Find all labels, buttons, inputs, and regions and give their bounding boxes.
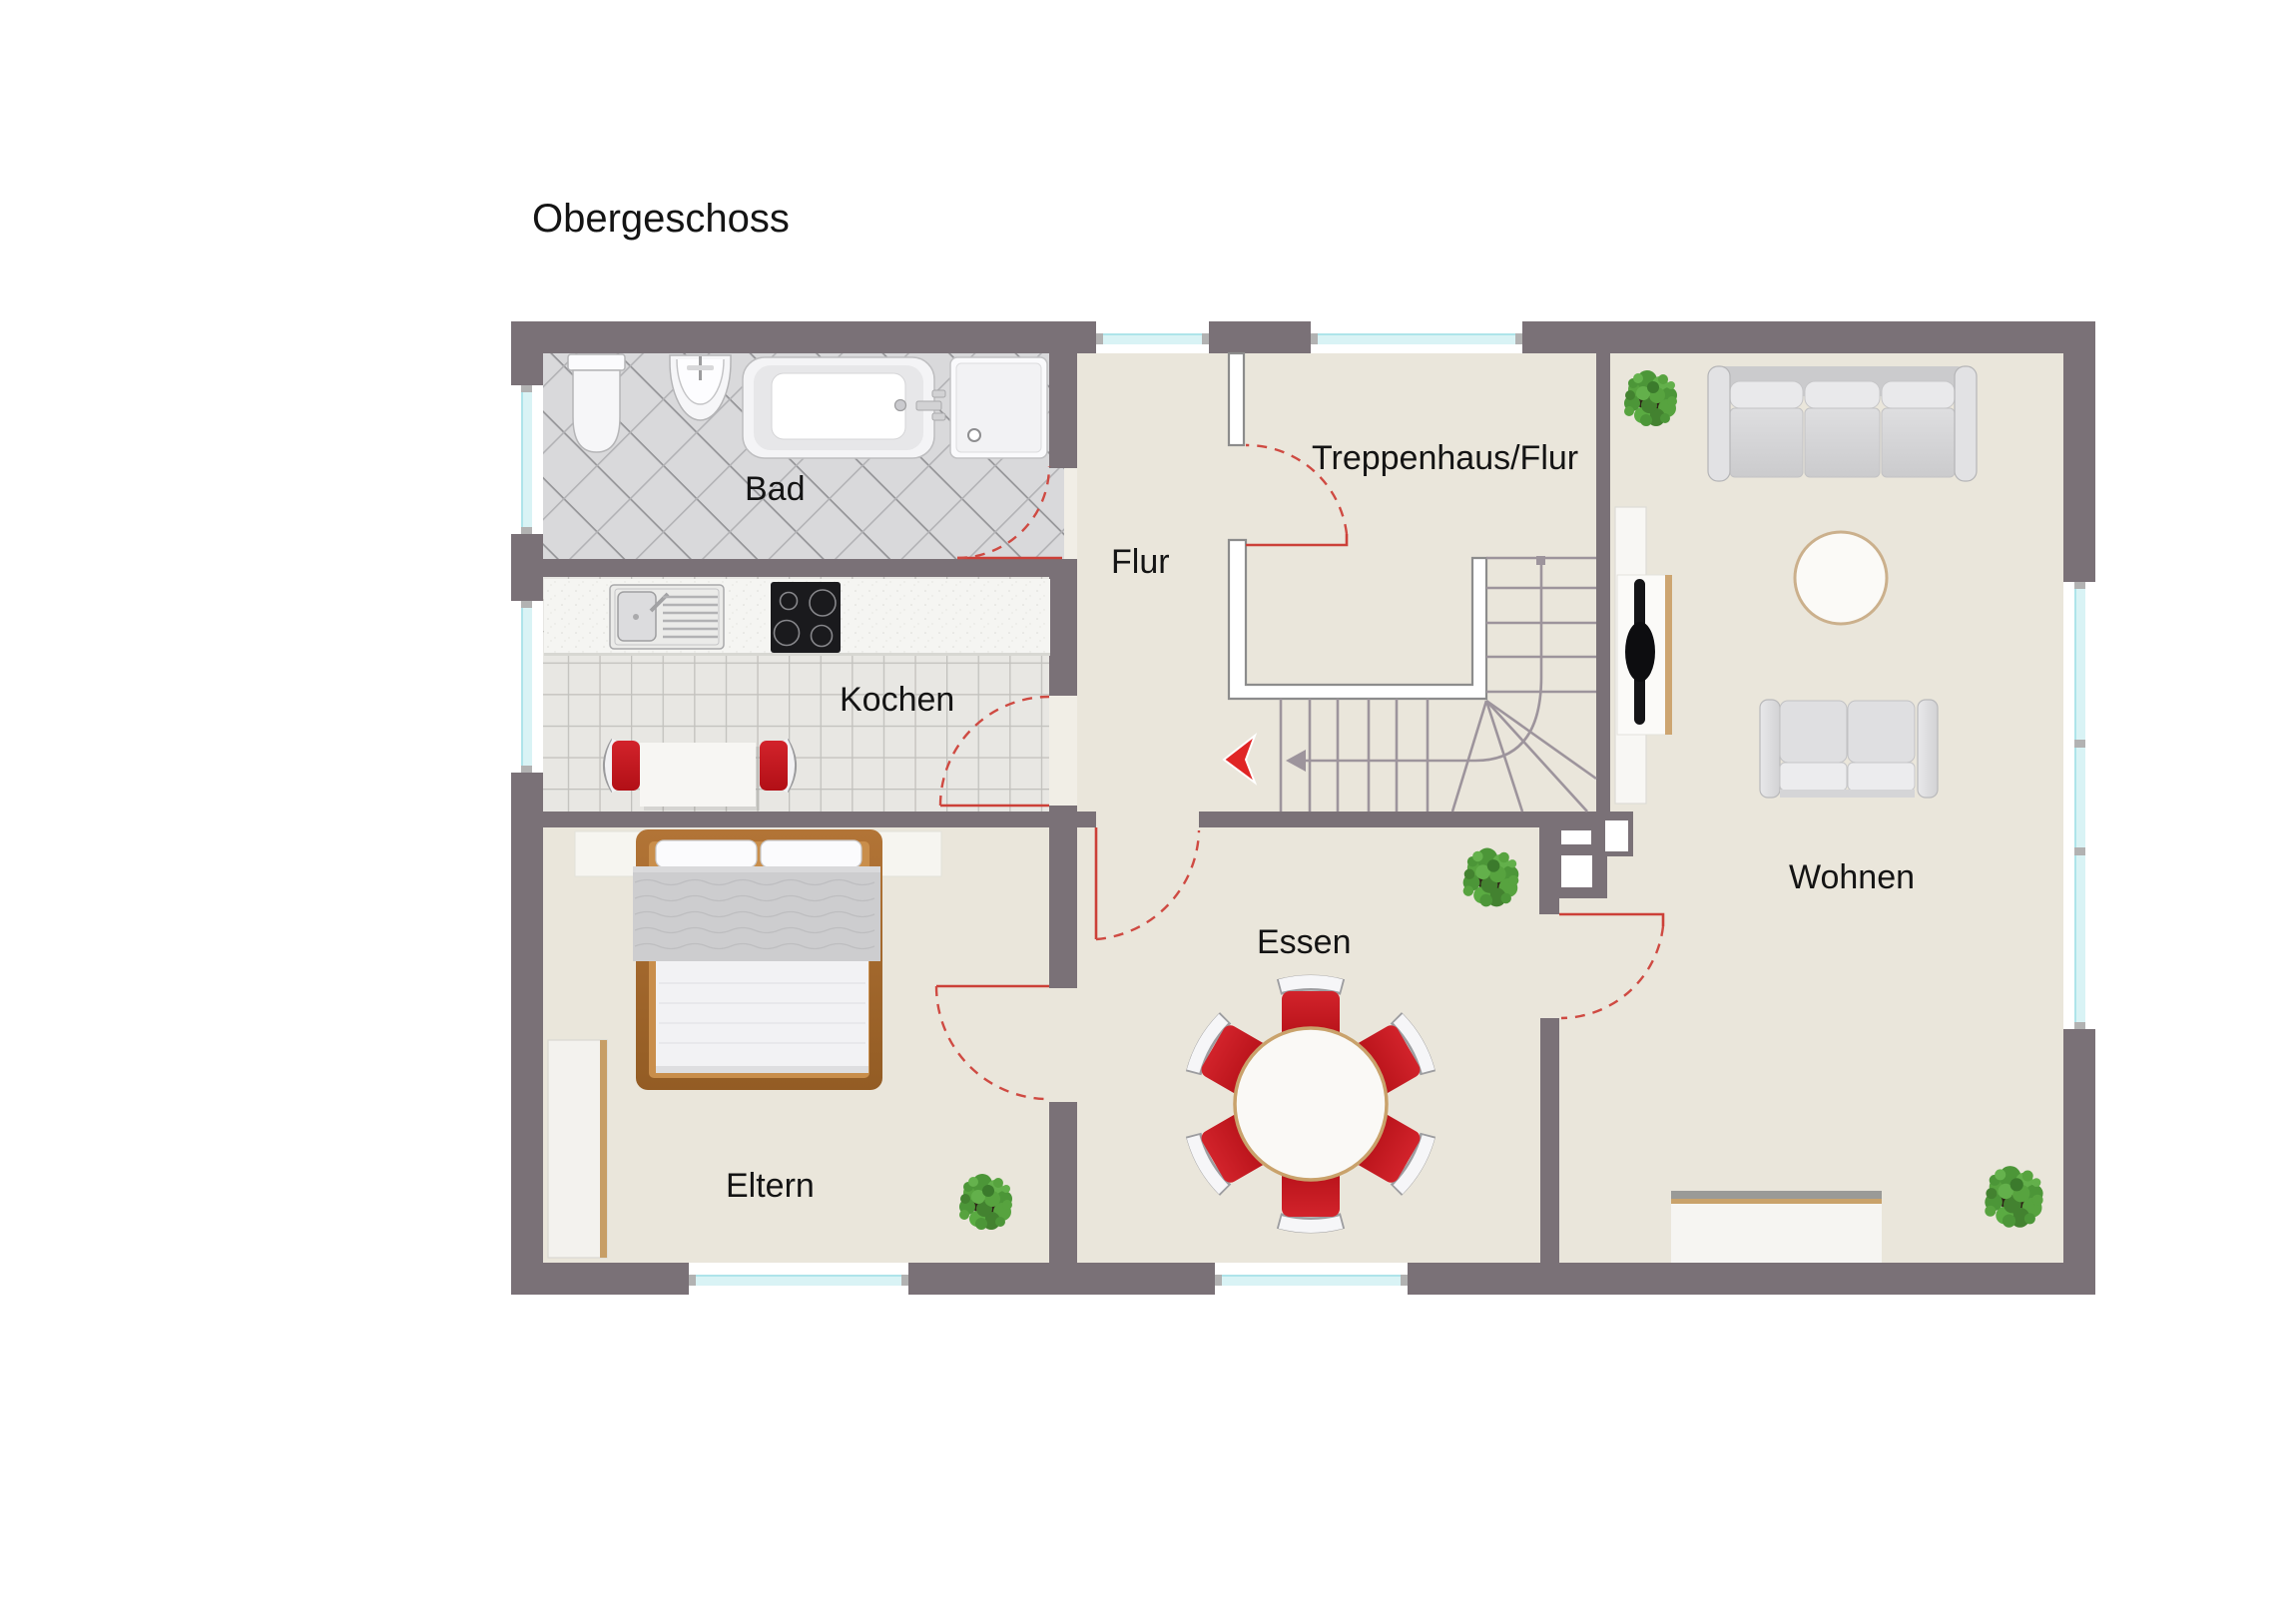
svg-text:Flur: Flur	[1111, 543, 1170, 581]
svg-text:Kochen: Kochen	[840, 681, 954, 719]
svg-text:Essen: Essen	[1257, 923, 1352, 961]
svg-text:Bad: Bad	[745, 470, 806, 508]
svg-text:Treppenhaus/Flur: Treppenhaus/Flur	[1312, 439, 1578, 477]
svg-text:Obergeschoss: Obergeschoss	[532, 197, 790, 241]
svg-text:Eltern: Eltern	[726, 1167, 815, 1205]
svg-text:Wohnen: Wohnen	[1789, 858, 1915, 896]
